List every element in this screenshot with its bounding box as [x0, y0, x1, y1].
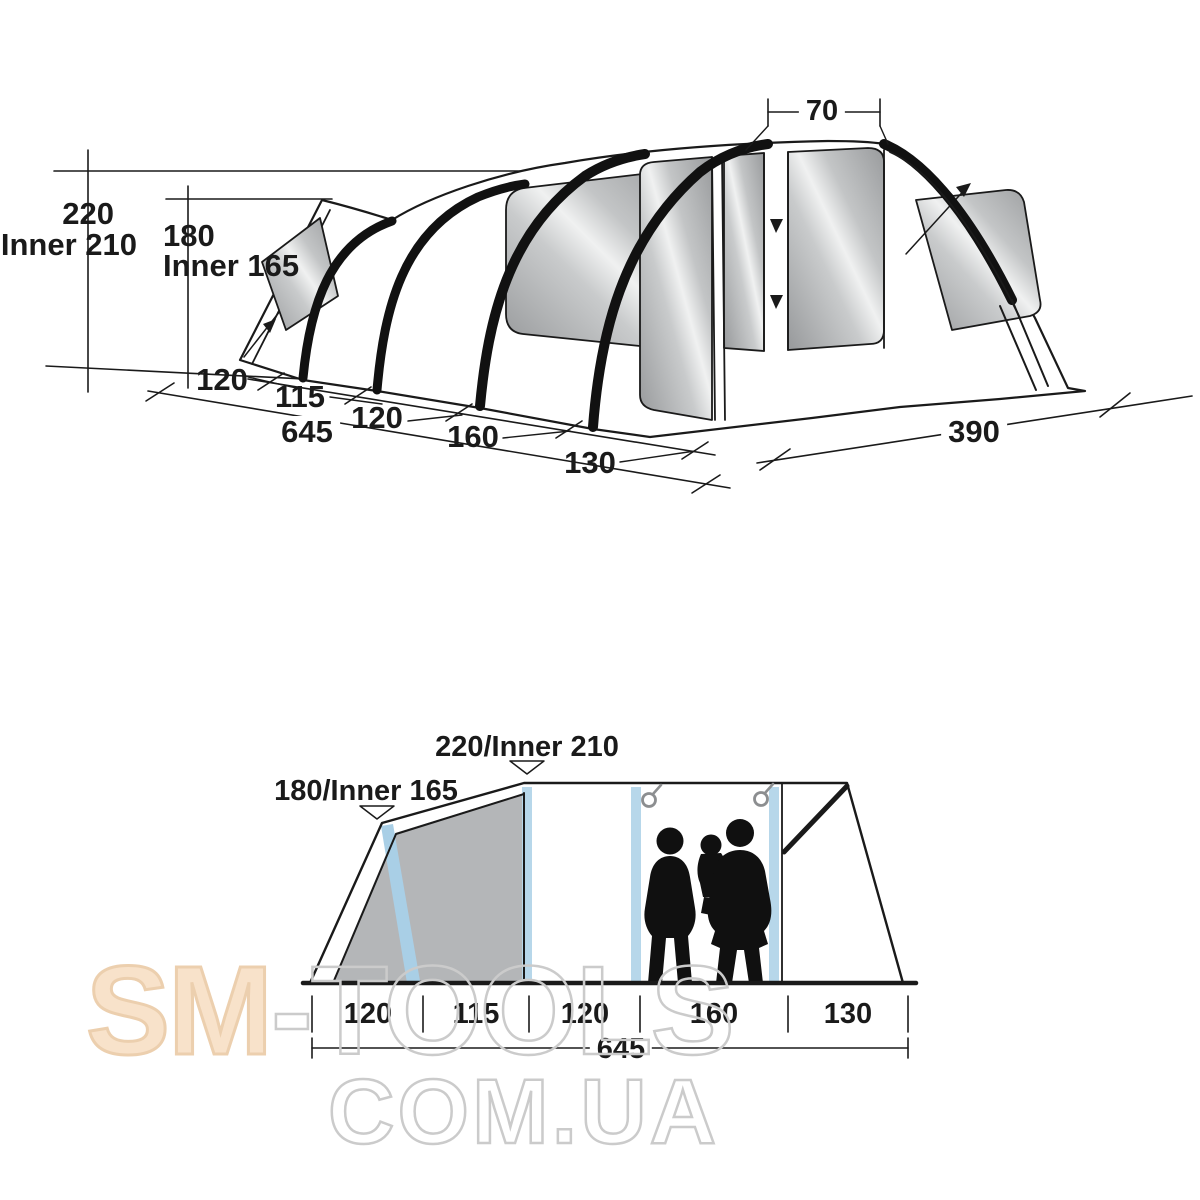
side-label-total-645: 645 — [590, 1035, 652, 1064]
dim-label-inner-165: Inner 165 — [163, 250, 299, 281]
side-label-seg4: 160 — [690, 1000, 738, 1029]
adult-head — [657, 828, 684, 855]
side-label-rear: 180/Inner 165 — [274, 777, 458, 806]
adult-body — [644, 856, 695, 983]
side-label-seg5: 130 — [824, 1000, 872, 1029]
side-label-peak: 220/Inner 210 — [435, 733, 619, 762]
ring-hook-icon — [653, 785, 661, 794]
pole-blue-vertical-3 — [769, 787, 779, 983]
dim-label-inner-210: Inner 210 — [0, 229, 137, 260]
side-label-seg1: 120 — [344, 1000, 392, 1029]
pole-blue-vertical-2 — [631, 787, 641, 983]
door-window-pane-left — [724, 153, 764, 351]
side-label-seg2: 115 — [453, 1000, 500, 1029]
tent-dimension-diagram: 70 220 Inner 210 180 Inner 165 120 115 1… — [0, 0, 1200, 1200]
dim-label-seg1: 120 — [196, 364, 248, 395]
dim-label-seg3: 120 — [351, 402, 403, 433]
door-window-pane-right — [788, 148, 884, 350]
dim-label-total-645: 645 — [274, 416, 340, 447]
pointer-triangle-icon — [360, 806, 394, 819]
dim-tick — [692, 475, 720, 493]
people-silhouettes — [644, 819, 771, 983]
ring-icon — [643, 794, 656, 807]
dim-label-seg4: 160 — [447, 421, 499, 452]
dim-tick — [1100, 393, 1130, 417]
inner-tent-panel — [332, 793, 525, 983]
adult-body — [708, 850, 772, 983]
rear-strut — [784, 786, 847, 852]
dim-label-70: 70 — [799, 97, 845, 126]
dim-label-seg5: 130 — [564, 447, 616, 478]
dim-tick — [760, 449, 790, 470]
dim-leader — [620, 451, 695, 462]
dim-label-220: 220 — [0, 198, 114, 229]
dim-label-seg2: 115 — [275, 381, 325, 412]
side-label-seg3: 120 — [561, 1000, 609, 1029]
adult-head — [726, 819, 754, 847]
ring-icon — [755, 793, 768, 806]
side-view-dim-ticks — [312, 996, 908, 1032]
child-head — [701, 835, 722, 856]
dim-label-180: 180 — [163, 220, 215, 251]
dim-label-390: 390 — [941, 416, 1007, 447]
